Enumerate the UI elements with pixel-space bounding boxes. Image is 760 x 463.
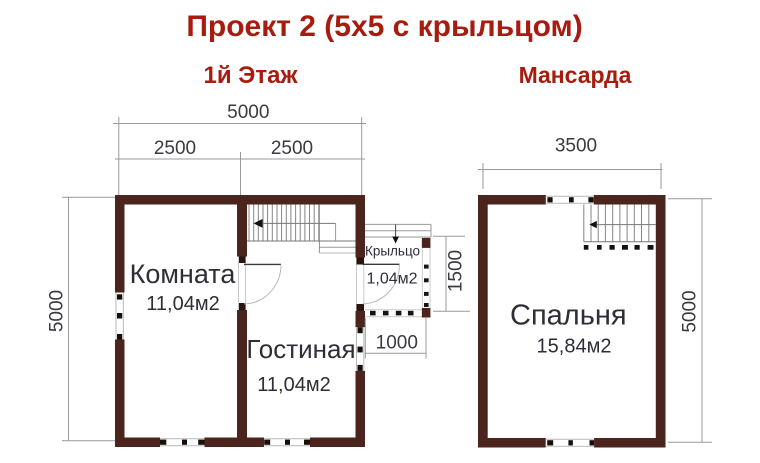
svg-text:1,04м2: 1,04м2 <box>366 271 417 288</box>
svg-text:1500: 1500 <box>446 250 467 292</box>
svg-text:11,04м2: 11,04м2 <box>257 374 330 396</box>
svg-text:Мансарда: Мансарда <box>519 62 632 88</box>
svg-text:Гостиная: Гостиная <box>246 334 355 364</box>
svg-text:Спальня: Спальня <box>510 300 627 332</box>
svg-text:Комната: Комната <box>130 259 237 289</box>
svg-text:2500: 2500 <box>271 138 313 159</box>
svg-text:5000: 5000 <box>47 290 68 332</box>
svg-text:15,84м2: 15,84м2 <box>537 336 612 358</box>
svg-text:5000: 5000 <box>680 290 701 332</box>
svg-text:1000: 1000 <box>376 333 418 354</box>
svg-text:2500: 2500 <box>154 138 196 159</box>
svg-text:3500: 3500 <box>555 136 597 157</box>
svg-text:1й Этаж: 1й Этаж <box>204 62 299 89</box>
svg-text:Проект 2 (5х5 с крыльцом): Проект 2 (5х5 с крыльцом) <box>186 10 582 43</box>
svg-text:11,04м2: 11,04м2 <box>146 293 219 315</box>
svg-text:5000: 5000 <box>227 102 269 123</box>
svg-text:Крыльцо: Крыльцо <box>365 244 420 259</box>
